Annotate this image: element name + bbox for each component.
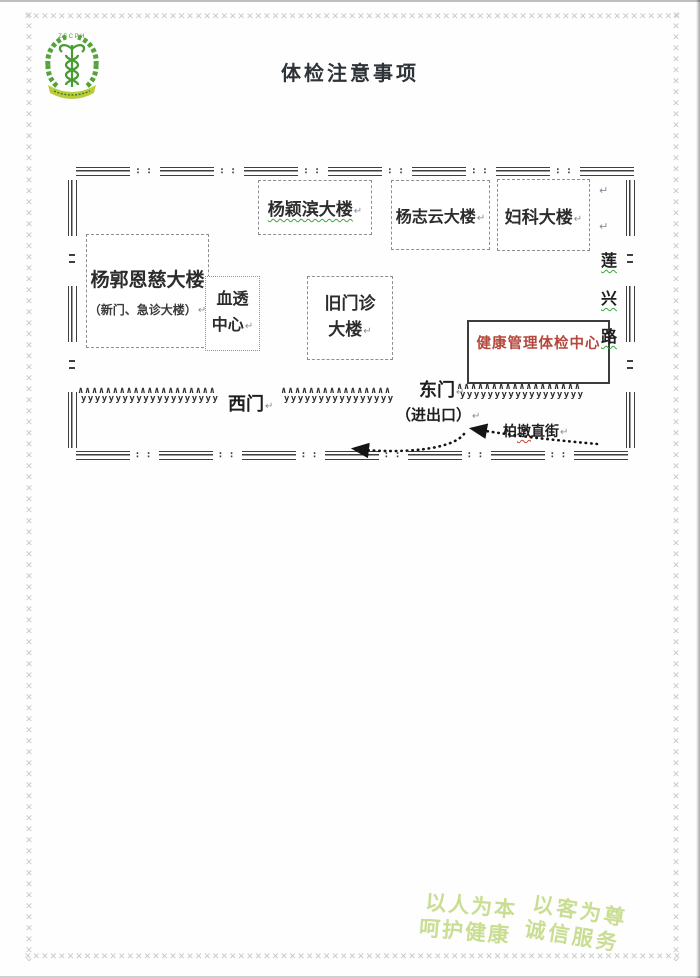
logo-arc-text: ZSCPH xyxy=(58,34,86,40)
page-border-right: ✕✕✕✕✕✕✕✕✕✕✕✕✕✕✕✕✕✕✕✕✕✕✕✕✕✕✕✕✕✕✕✕✕✕✕✕✕✕✕✕… xyxy=(671,11,682,961)
slogan-left: 以人为本 呵护健康 xyxy=(422,890,518,950)
page-border-left: ✕✕✕✕✕✕✕✕✕✕✕✕✕✕✕✕✕✕✕✕✕✕✕✕✕✕✕✕✕✕✕✕✕✕✕✕✕✕✕✕… xyxy=(24,11,35,961)
scan-edge-right xyxy=(696,0,700,978)
page-title: 体检注意事项 xyxy=(0,57,700,86)
route-dotted-west xyxy=(356,434,464,451)
page-border-bottom: ✕✕✕✕✕✕✕✕✕✕✕✕✕✕✕✕✕✕✕✕✕✕✕✕✕✕✕✕✕✕✕✕✕✕✕✕✕✕✕✕… xyxy=(24,951,680,962)
slogan-right: 以客为尊 诚信服务 xyxy=(527,892,630,958)
route-dotted-east xyxy=(474,429,597,444)
scanned-notice-page: ✕✕✕✕✕✕✕✕✕✕✕✕✕✕✕✕✕✕✕✕✕✕✕✕✕✕✕✕✕✕✕✕✕✕✕✕✕✕✕✕… xyxy=(0,0,700,978)
page-border-top: ✕✕✕✕✕✕✕✕✕✕✕✕✕✕✕✕✕✕✕✕✕✕✕✕✕✕✕✕✕✕✕✕✕✕✕✕✕✕✕✕… xyxy=(24,11,680,22)
route-arrows xyxy=(60,160,640,475)
scan-edge-top xyxy=(0,0,700,2)
